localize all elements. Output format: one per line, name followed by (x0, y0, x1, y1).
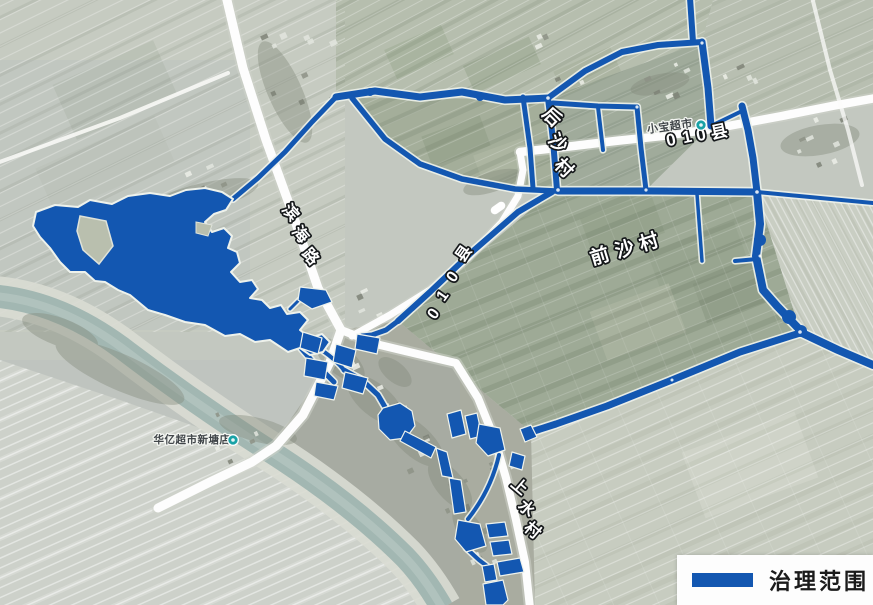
treatment-pond (486, 522, 508, 538)
legend-panel: 治理范围 (677, 555, 873, 605)
legend-label: 治理范围 (769, 564, 869, 596)
treatment-pond (482, 564, 497, 582)
treatment-pond (483, 580, 508, 605)
treatment-canal (690, 0, 693, 42)
treatment-pond (509, 452, 525, 470)
treatment-pond (304, 358, 328, 380)
treatment-canal (558, 191, 757, 192)
map-figure: 后沙村前沙村上水村滨海路010县010县小宝超市华亿超市新塘店 治理范围 (0, 0, 873, 605)
treatment-canal (735, 259, 757, 261)
svg-text:华亿超市新塘店: 华亿超市新塘店 (154, 433, 231, 446)
poi-huayi-supermarket: 华亿超市新塘店 (154, 433, 239, 446)
treatment-pond (490, 540, 512, 556)
satellite-map: 后沙村前沙村上水村滨海路010县010县小宝超市华亿超市新塘店 (0, 0, 873, 605)
legend-swatch (692, 573, 753, 587)
